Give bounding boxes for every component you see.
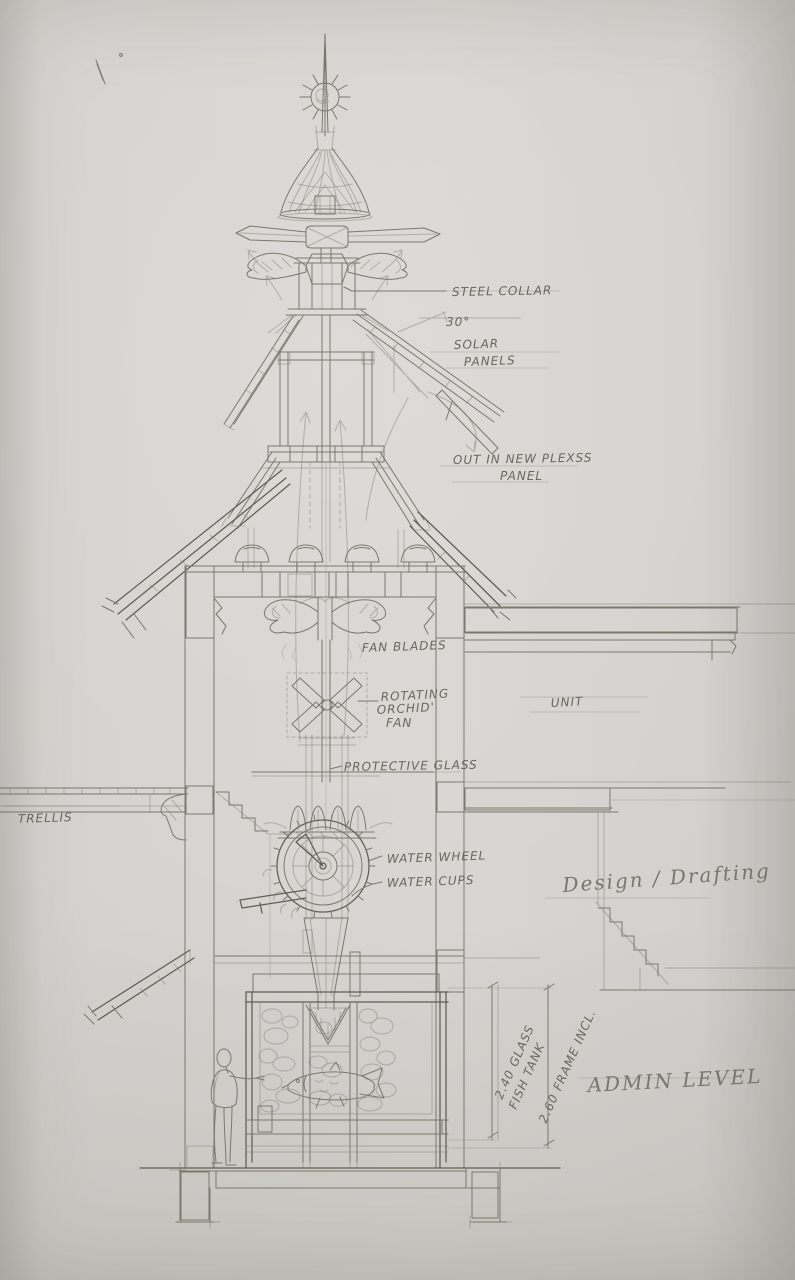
admin-level-label: ADMIN LEVEL bbox=[585, 1064, 763, 1097]
rotating-fan-label-line2: ORCHID' bbox=[376, 700, 435, 717]
unit-label: UNIT bbox=[550, 694, 584, 710]
fish bbox=[282, 1062, 384, 1108]
rotating-fan-label-line3: FAN bbox=[386, 716, 412, 730]
steel-collar-label: STEEL COLLAR bbox=[452, 283, 553, 299]
main-roof bbox=[102, 470, 516, 638]
solar-panels-label-line1: SOLAR bbox=[454, 336, 500, 352]
out-panel-label-line2: PANEL bbox=[500, 469, 543, 483]
leaf-blades bbox=[247, 250, 407, 284]
fan-blades-label: FAN BLADES bbox=[362, 638, 447, 655]
airflow-arrows bbox=[266, 276, 476, 742]
design-drafting-label: Design / Drafting bbox=[561, 858, 772, 897]
wind-turbine-blades bbox=[236, 226, 440, 262]
red-pencil-mark bbox=[96, 54, 122, 84]
right-stairs bbox=[596, 812, 795, 990]
right-floor-upper bbox=[465, 604, 795, 660]
ground-foundation bbox=[140, 1162, 560, 1228]
water-cups-label: WATER CUPS bbox=[387, 873, 475, 890]
tower-walls bbox=[185, 566, 464, 1168]
sketch-canvas: STEEL COLLAR 30° SOLAR PANELS OUT IN NEW… bbox=[0, 0, 795, 1280]
tank-frame-dimension-label: 2.60 FRAME INCL. bbox=[536, 1007, 599, 1125]
roof-vents bbox=[235, 545, 435, 572]
left-lower-roof bbox=[84, 950, 194, 1024]
bell-cage bbox=[278, 148, 372, 221]
steel-collar bbox=[268, 258, 388, 333]
out-panel-label-line1: OUT IN NEW PLEXSS bbox=[453, 451, 593, 467]
paper-sheet: STEEL COLLAR 30° SOLAR PANELS OUT IN NEW… bbox=[0, 0, 795, 1280]
right-floor-lower bbox=[465, 782, 795, 812]
water-wheel-label: WATER WHEEL bbox=[387, 849, 487, 866]
fish-tank bbox=[246, 992, 448, 1168]
solar-angle-label: 30° bbox=[446, 315, 470, 329]
trellis-label: TRELLIS bbox=[18, 810, 73, 826]
funnel-chute bbox=[304, 918, 348, 1010]
person-figure bbox=[211, 1049, 264, 1165]
leader-lines bbox=[4, 287, 736, 1078]
protective-glass-label: PROTECTIVE GLASS bbox=[344, 758, 478, 774]
central-shaft bbox=[322, 462, 330, 820]
solar-panels-label-line2: PANELS bbox=[464, 353, 516, 369]
